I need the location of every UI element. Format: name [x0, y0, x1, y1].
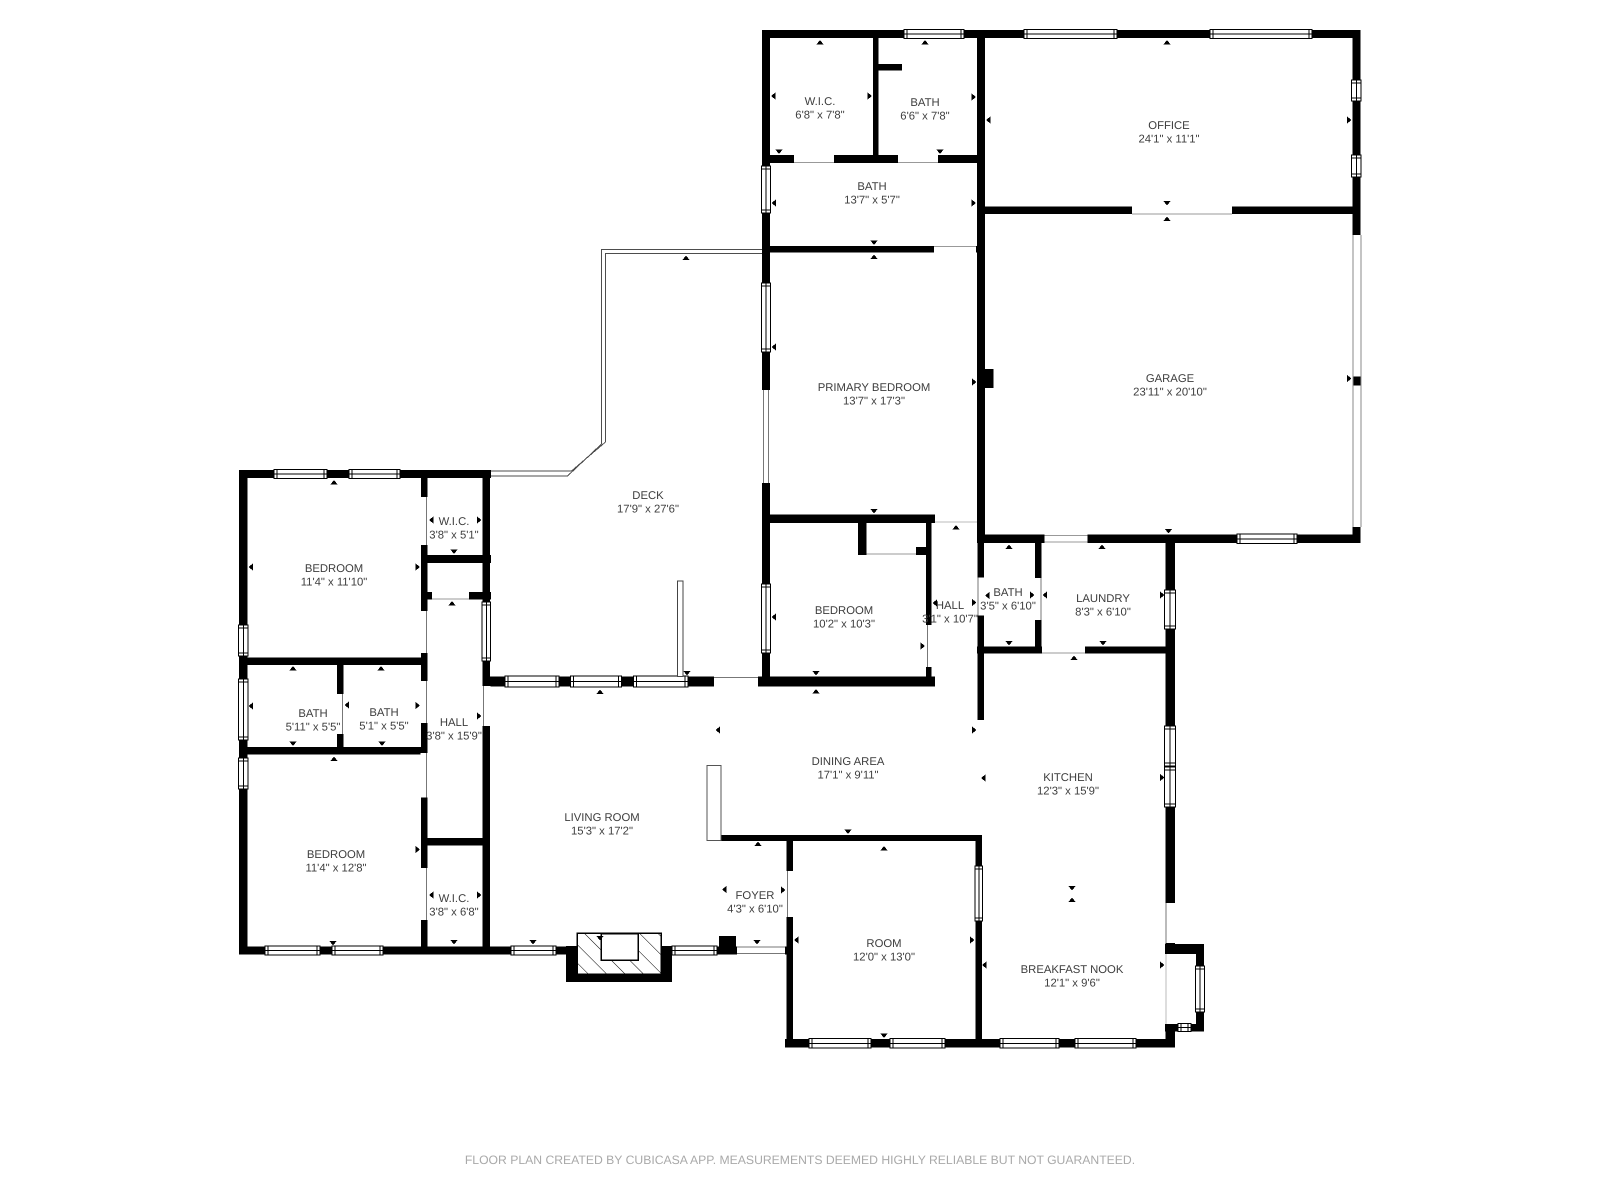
svg-text:BATH: BATH [993, 587, 1022, 599]
svg-text:12'0" x 13'0": 12'0" x 13'0" [853, 952, 915, 964]
svg-text:3'8" x 15'9": 3'8" x 15'9" [426, 731, 482, 743]
svg-text:KITCHEN: KITCHEN [1043, 772, 1093, 784]
svg-text:BATH: BATH [857, 181, 886, 193]
svg-text:3'5" x 6'10": 3'5" x 6'10" [980, 601, 1036, 613]
svg-text:4'3" x 6'10": 4'3" x 6'10" [727, 904, 783, 916]
svg-text:3'8" x 5'1": 3'8" x 5'1" [429, 530, 478, 542]
svg-text:W.I.C.: W.I.C. [439, 516, 470, 528]
svg-text:12'3" x 15'9": 12'3" x 15'9" [1037, 786, 1099, 798]
svg-text:BEDROOM: BEDROOM [307, 849, 365, 861]
svg-text:LIVING ROOM: LIVING ROOM [564, 812, 639, 824]
svg-text:FOYER: FOYER [736, 890, 775, 902]
svg-text:24'1" x 11'1": 24'1" x 11'1" [1138, 134, 1199, 146]
svg-text:BEDROOM: BEDROOM [305, 563, 363, 575]
svg-text:10'2" x 10'3": 10'2" x 10'3" [813, 619, 875, 631]
svg-text:11'4" x 12'8": 11'4" x 12'8" [305, 863, 366, 875]
svg-text:23'11" x 20'10": 23'11" x 20'10" [1133, 387, 1207, 399]
svg-text:GARAGE: GARAGE [1146, 373, 1195, 385]
svg-text:BATH: BATH [369, 707, 398, 719]
svg-text:5'11" x 5'5": 5'11" x 5'5" [286, 722, 341, 734]
svg-text:OFFICE: OFFICE [1148, 120, 1190, 132]
svg-text:BATH: BATH [298, 708, 327, 720]
svg-text:17'1" x 9'11": 17'1" x 9'11" [817, 770, 878, 782]
svg-text:DINING AREA: DINING AREA [812, 756, 885, 768]
svg-text:W.I.C.: W.I.C. [439, 893, 470, 905]
svg-text:15'3" x 17'2": 15'3" x 17'2" [571, 826, 633, 838]
svg-text:LAUNDRY: LAUNDRY [1076, 593, 1130, 605]
svg-text:HALL: HALL [936, 600, 964, 612]
svg-text:HALL: HALL [440, 717, 468, 729]
svg-text:6'6" x 7'8": 6'6" x 7'8" [900, 111, 949, 123]
svg-text:8'3" x 6'10": 8'3" x 6'10" [1075, 607, 1131, 619]
svg-text:17'9" x 27'6": 17'9" x 27'6" [617, 504, 679, 516]
svg-text:ROOM: ROOM [866, 938, 901, 950]
svg-text:13'7" x 17'3": 13'7" x 17'3" [843, 396, 905, 408]
svg-text:12'1" x 9'6": 12'1" x 9'6" [1044, 978, 1100, 990]
svg-text:BREAKFAST NOOK: BREAKFAST NOOK [1021, 964, 1124, 976]
svg-text:3'1" x 10'7": 3'1" x 10'7" [922, 614, 978, 626]
svg-text:W.I.C.: W.I.C. [805, 96, 836, 108]
svg-text:BEDROOM: BEDROOM [815, 605, 873, 617]
svg-text:6'8" x 7'8": 6'8" x 7'8" [795, 110, 844, 122]
svg-text:DECK: DECK [632, 490, 664, 502]
svg-text:PRIMARY BEDROOM: PRIMARY BEDROOM [818, 382, 931, 394]
svg-text:3'8" x 6'8": 3'8" x 6'8" [429, 907, 478, 919]
svg-text:5'1" x 5'5": 5'1" x 5'5" [359, 721, 408, 733]
svg-text:BATH: BATH [910, 97, 939, 109]
svg-text:11'4" x 11'10": 11'4" x 11'10" [301, 577, 368, 589]
svg-text:13'7" x 5'7": 13'7" x 5'7" [844, 195, 900, 207]
svg-text:FLOOR PLAN CREATED BY CUBICASA: FLOOR PLAN CREATED BY CUBICASA APP. MEAS… [465, 1153, 1135, 1167]
